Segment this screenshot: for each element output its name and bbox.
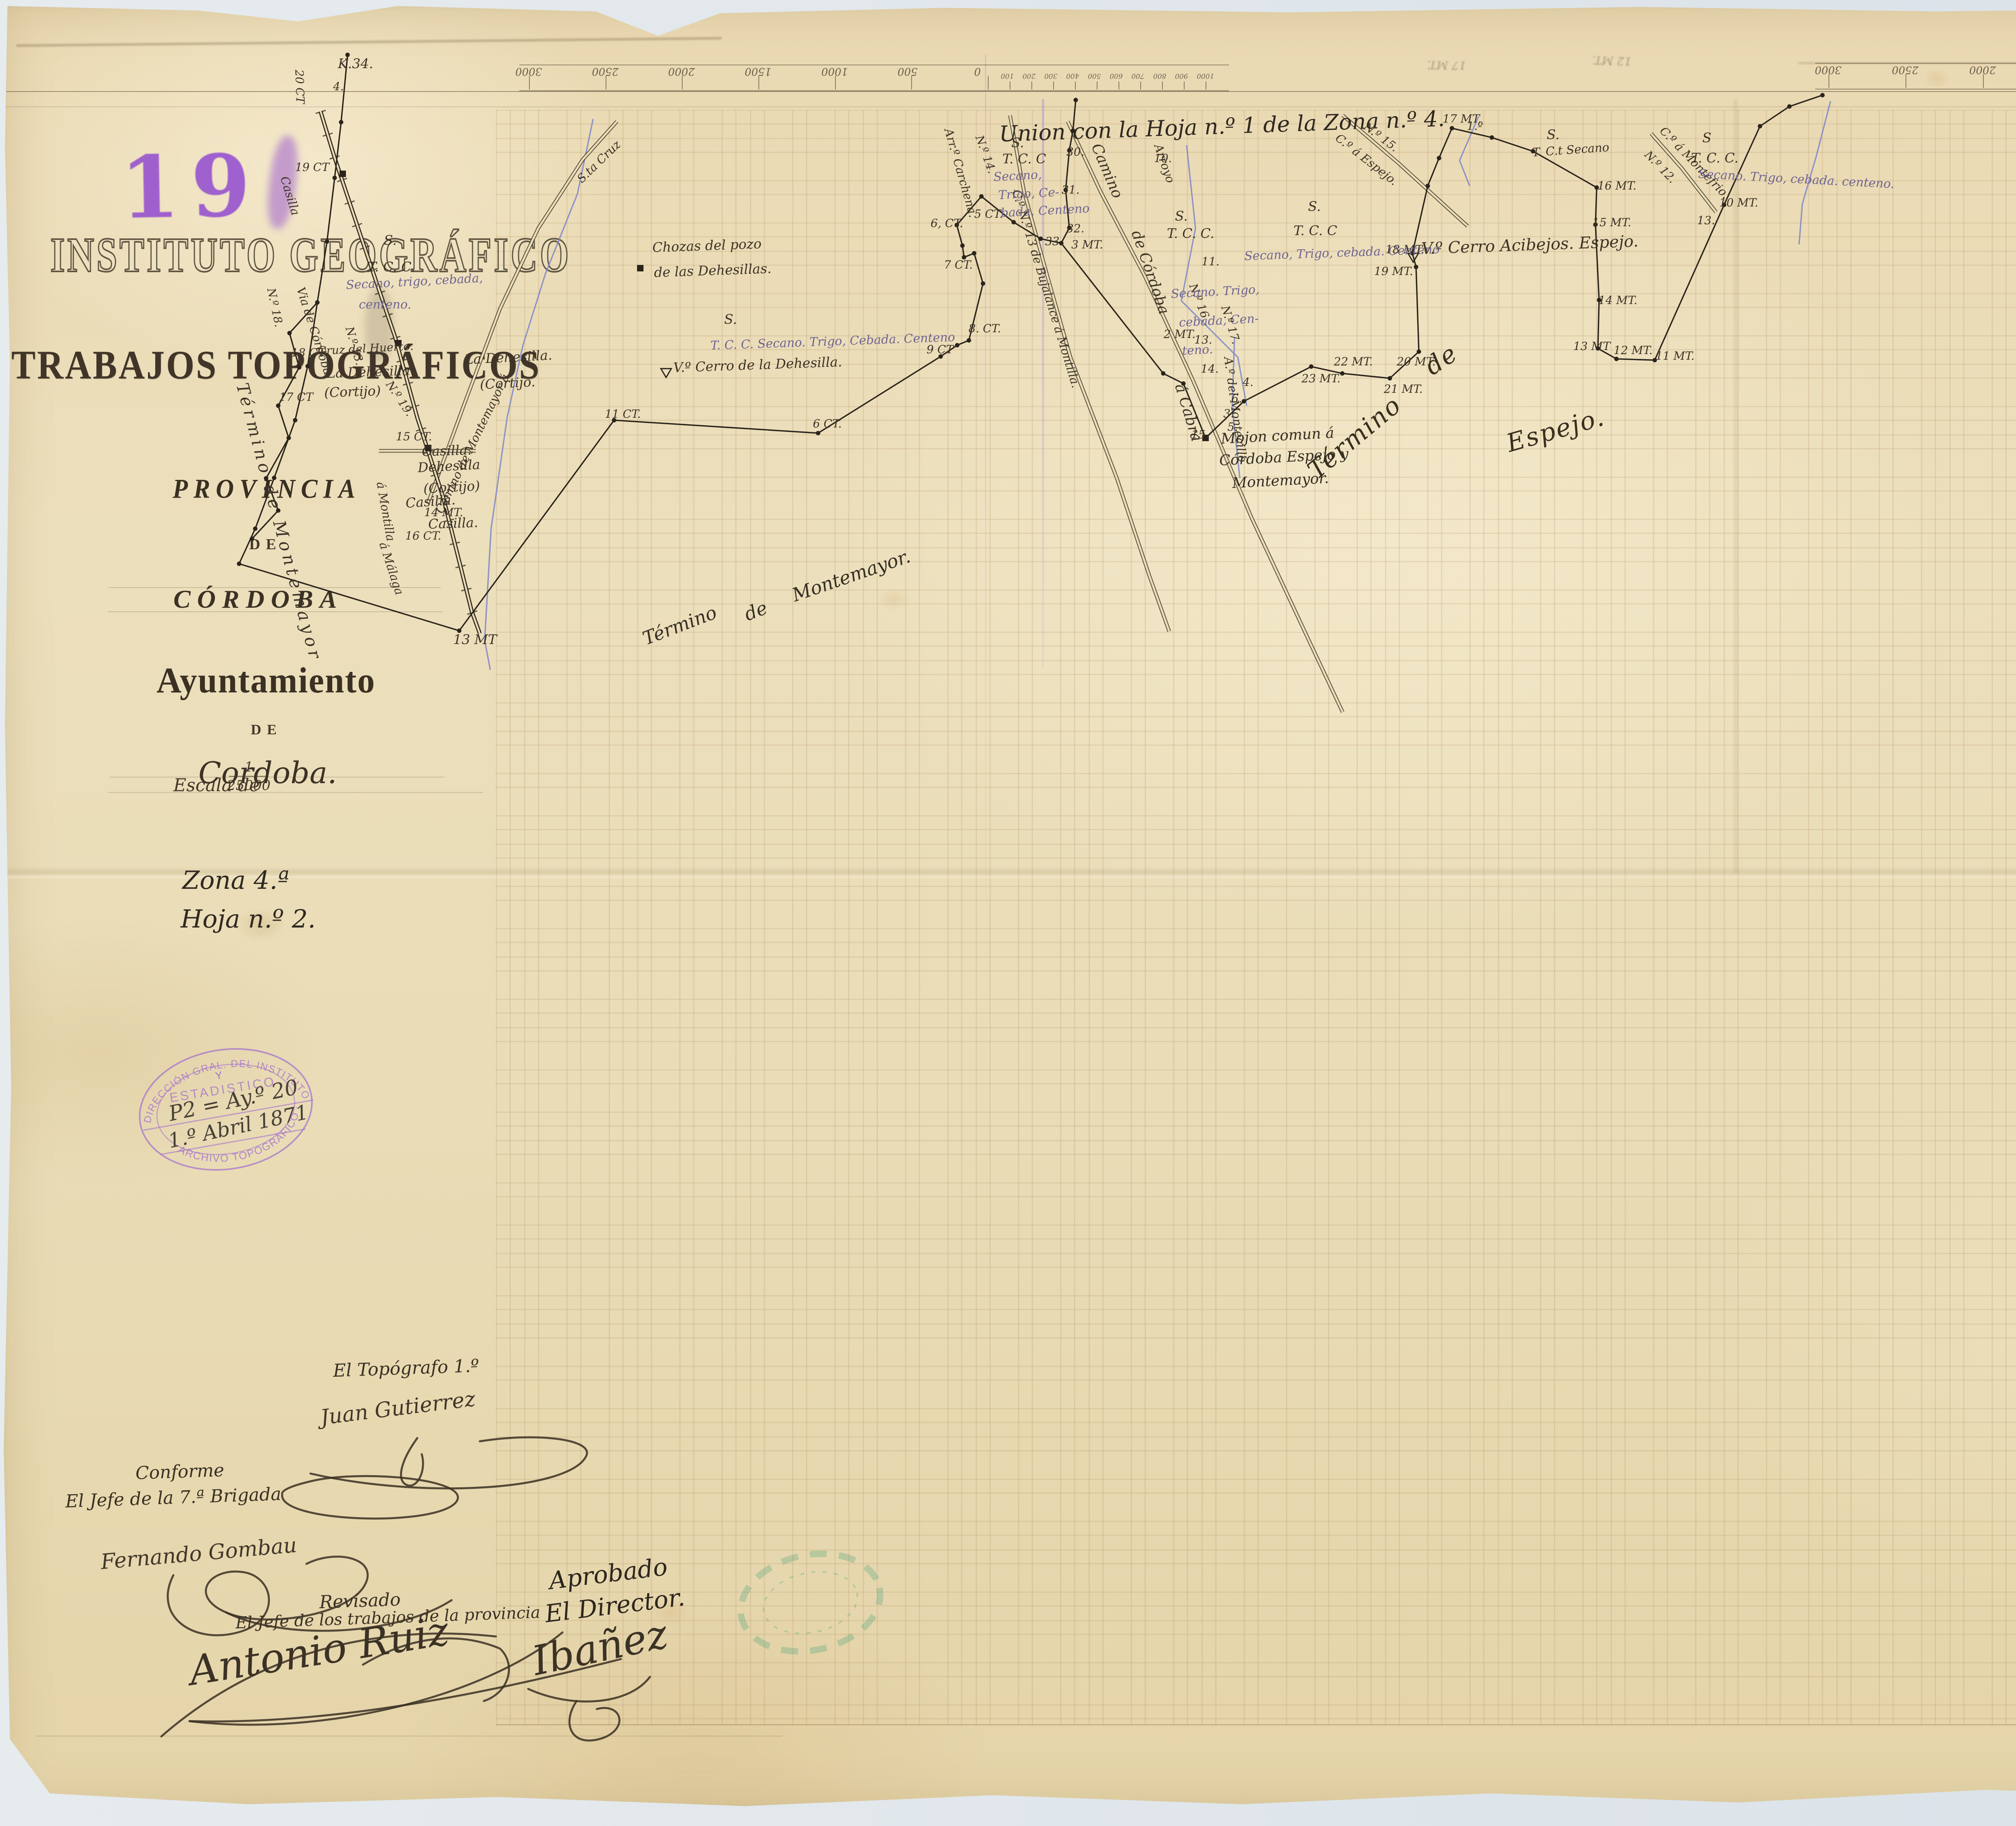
map-label: 13. — [1697, 214, 1715, 227]
scale-bar-major-tick — [606, 76, 606, 90]
scale-bar-major-label: 0 — [974, 65, 981, 77]
survey-station-dot — [1074, 98, 1078, 102]
scale-bar-minor-label: 800 — [1153, 72, 1166, 80]
map-label: T. C. C — [1293, 223, 1337, 238]
scale-bar-major-label: 2000 — [668, 65, 695, 77]
scale-fraction: 1 25000 — [227, 759, 271, 794]
map-label: 15 CT. — [396, 430, 432, 443]
scale-bar-major-tick — [1829, 74, 1829, 88]
map-label: á Montilla — [374, 481, 398, 542]
map-label: 18 MT. — [1385, 243, 1425, 256]
scale-bar-major-tick — [682, 76, 683, 90]
signature-text: El Jefe de la 7.ª Brigada — [65, 1484, 281, 1512]
survey-station-dot — [276, 404, 281, 408]
scale-bar-minor-label: 300 — [1044, 72, 1057, 80]
survey-station-dot — [237, 562, 242, 566]
map-label: 14 MT. — [1598, 294, 1637, 307]
map-label: 9 CT — [927, 343, 954, 356]
zona-label: Zona 4.ª — [182, 865, 289, 895]
survey-station-dot — [293, 418, 298, 423]
map-label: 33. — [1045, 235, 1063, 248]
map-label: 15 MT. — [1592, 216, 1631, 229]
map-label: La Dehesilla. — [326, 362, 414, 381]
map-label: 22 MT. — [1334, 355, 1373, 368]
scale-bar-minor-tick — [1206, 81, 1206, 90]
map-label: 12 MT. — [1614, 344, 1653, 357]
map-label: Casilla. — [421, 442, 472, 459]
scale-bar-minor-label: 100 — [1001, 72, 1014, 80]
building-square-symbol — [339, 171, 346, 177]
map-label: S. — [1011, 135, 1024, 150]
scale-bar-minor-tick — [1053, 81, 1054, 90]
map-label: 32. — [1066, 222, 1085, 235]
scale-bar-major-tick — [1906, 74, 1906, 88]
scale-bar-minor-tick — [1010, 81, 1010, 90]
map-label: 13. — [1194, 333, 1212, 346]
map-label: 11 CT. — [605, 407, 641, 421]
scale-bar-major-tick — [1983, 74, 1984, 88]
survey-station-dot — [1820, 93, 1825, 98]
stamp-y-text: Y — [215, 1069, 223, 1082]
scanned-map-sheet: 3000250020001500100050001002003004005006… — [0, 0, 2016, 1826]
map-label: 5 CT. — [974, 207, 1003, 221]
bottom-dotted-line — [36, 1736, 782, 1736]
top-tear-crease — [16, 37, 722, 47]
scale-bar-minor-tick — [1075, 81, 1076, 90]
signature-text: Conforme — [135, 1460, 225, 1484]
scale-bar-minor-label: 500 — [1088, 72, 1101, 80]
scale-bar-major-label: 2500 — [592, 65, 619, 77]
map-label: centeno. — [359, 298, 411, 312]
survey-station-dot — [253, 527, 258, 531]
survey-station-dot — [315, 300, 320, 305]
map-label: T. C. C — [1002, 151, 1046, 167]
scale-bar-minor-tick — [1140, 81, 1141, 90]
cordoba-caps: CÓRDOBA — [173, 584, 343, 614]
scale-bar-minor-tick — [1118, 81, 1119, 90]
map-label: 19 CT — [295, 161, 329, 174]
map-label: 5. — [1227, 420, 1238, 434]
scale-bar-major-tick — [529, 76, 530, 90]
paper-sheet: 3000250020001500100050001002003004005006… — [0, 2, 2016, 1811]
stamp-handwritten-ref: P2 = Ay.º 20 — [166, 1075, 300, 1126]
scale-bar-minor-label: 600 — [1110, 72, 1123, 80]
signature-text: El Topógrafo 1.º — [333, 1355, 479, 1381]
map-label: Término de Montemayor — [232, 381, 326, 664]
survey-station-dot — [287, 436, 291, 440]
map-label: 7 CT. — [944, 258, 973, 271]
map-label: 6, CT. — [931, 217, 963, 230]
map-label: 11 MT. — [1656, 349, 1695, 363]
signature-text: Fernando Gombau — [100, 1533, 298, 1574]
top-rule-line-2 — [0, 106, 2016, 107]
map-label: 8. CT. — [968, 322, 1001, 335]
stamp-handwritten-date: 1.º Abril 1871 — [166, 1100, 311, 1153]
map-label: S. — [384, 232, 397, 248]
ayuntamiento-title: Ayuntamiento — [156, 659, 375, 701]
map-label: 19 MT. — [1374, 265, 1413, 278]
map-label: S — [1702, 130, 1712, 146]
survey-station-dot — [339, 120, 344, 125]
map-label: 6. — [1231, 392, 1242, 405]
scale-bar-minor-label: 700 — [1131, 72, 1144, 80]
survey-station-dot — [315, 300, 320, 305]
purple-19-stamp: 19 — [119, 135, 262, 238]
map-label: 11. — [1202, 255, 1220, 268]
map-label: 6 CT. — [813, 417, 842, 430]
scale-bar-minor-tick — [1184, 81, 1185, 90]
map-label: á Málaga — [377, 540, 406, 597]
map-label: 23 MT. — [1302, 372, 1341, 385]
scale-bar-minor-tick — [1162, 81, 1163, 90]
hoja-label: Hoja n.º 2. — [181, 904, 316, 934]
map-label: 15. — [1191, 428, 1209, 441]
map-label: K.34. — [338, 56, 373, 71]
map-label: S. — [1175, 208, 1188, 224]
scale-bar-major-tick — [911, 76, 912, 90]
scale-bar-major-tick — [835, 76, 836, 90]
signature-text: Juan Gutierrez — [319, 1387, 477, 1430]
map-label: 4. — [1243, 375, 1254, 389]
scale-numerator: 1 — [227, 759, 271, 775]
scale-bar-major-label: 500 — [898, 65, 918, 77]
scale-bar-minor-label: 900 — [1175, 72, 1188, 80]
map-label: 13 MT — [453, 632, 497, 647]
map-label: 1.º — [1467, 119, 1483, 133]
scale-bar-major-label: 1000 — [821, 65, 848, 77]
scale-bar-major-tick — [758, 76, 759, 90]
map-label: (Cortijo) — [324, 383, 381, 400]
scale-bar-minor-tick — [1097, 81, 1098, 90]
survey-station-dot — [287, 331, 292, 336]
map-label: 17 CT — [279, 390, 313, 404]
map-label: 2 MT. — [1164, 327, 1195, 341]
map-label: 30. — [1066, 145, 1085, 158]
scale-bar-minor-label: 200 — [1023, 72, 1035, 80]
survey-station-dot — [333, 176, 337, 180]
map-label: T. C. C. — [1167, 225, 1214, 241]
map-label: Secano, — [993, 168, 1042, 184]
fraction-bar — [229, 776, 269, 777]
scale-bar-minor-label: 400 — [1066, 72, 1079, 80]
map-label: S. — [1308, 198, 1321, 214]
map-label: 17 MT. — [1427, 58, 1466, 72]
cordoba2-rule-bottom — [108, 792, 483, 793]
stamp-arc-bottom-text: · ARCHIVO TOPOGRÁFICO · — [166, 1103, 310, 1173]
map-label: 4. — [333, 80, 344, 93]
map-label: 14. — [1201, 362, 1219, 375]
scale-denominator: 25000 — [227, 778, 271, 794]
map-label: 16 MT. — [1597, 179, 1637, 192]
scale-bar-minor-label: 1000 — [1197, 72, 1214, 80]
map-label: 16 CT. — [405, 529, 441, 542]
cordoba-rule-bottom — [108, 611, 443, 612]
map-label: S. — [724, 311, 737, 327]
map-label: 13 MT — [1573, 340, 1610, 353]
scale-bar-major-tick — [988, 76, 989, 90]
de-label-2: DE — [251, 721, 282, 738]
scale-bar-major-label: 3000 — [1815, 64, 1841, 76]
map-label: T. C. C. — [1691, 150, 1739, 166]
scale-bar-major-label: 2000 — [1969, 64, 1996, 76]
map-label: S. — [1547, 127, 1560, 142]
scale-bar-major-label: 1500 — [745, 65, 771, 77]
scale-bar-major-label: 2500 — [1892, 64, 1918, 76]
svg-text:· ARCHIVO TOPOGRÁFICO ·: · ARCHIVO TOPOGRÁFICO · — [166, 1103, 310, 1173]
map-label: 31. — [1062, 183, 1080, 196]
scale-bar-major-label: 3000 — [515, 65, 542, 77]
map-label: N.º 18. — [264, 287, 286, 328]
scale-bar-minor-tick — [1031, 81, 1032, 90]
map-label: 20 CT — [293, 69, 307, 104]
stamp-estadistico-text: ESTADISTICO — [169, 1074, 277, 1105]
map-label: T. C. C. — [368, 259, 415, 275]
map-label: 3 MT. — [1071, 238, 1103, 251]
works-title: TRABAJOS TOPOGRÁFICOS — [11, 342, 541, 388]
map-label: 12 MT. — [1592, 54, 1632, 68]
